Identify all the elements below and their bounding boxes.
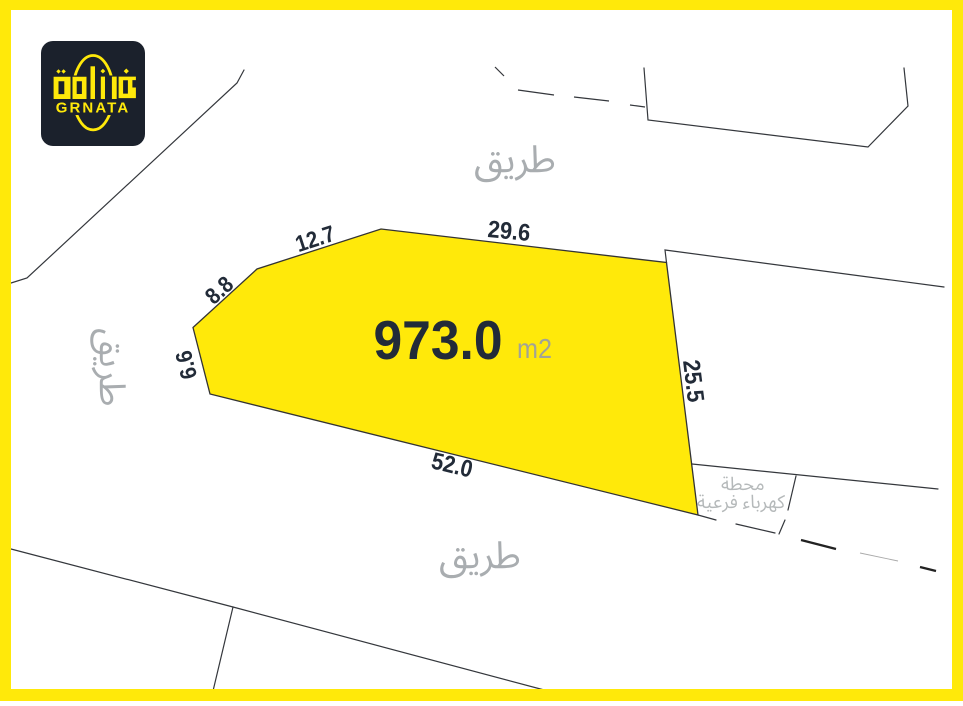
- svg-text:GRNATA: GRNATA: [56, 99, 131, 116]
- svg-text:25.5: 25.5: [677, 358, 709, 403]
- svg-text:973.0: 973.0: [374, 309, 503, 371]
- svg-text:29.6: 29.6: [487, 216, 532, 247]
- svg-text:m2: m2: [517, 333, 552, 364]
